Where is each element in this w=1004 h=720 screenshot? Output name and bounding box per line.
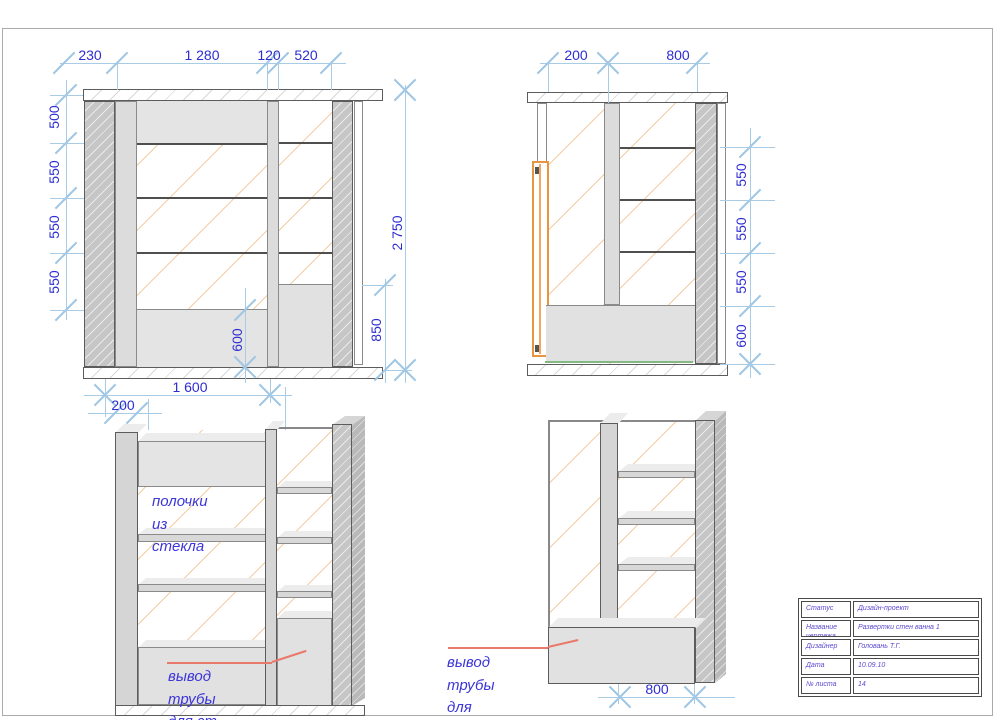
side-shelf — [277, 487, 332, 494]
base-block — [546, 305, 695, 362]
dim-label: 550 — [47, 150, 61, 194]
top-plank — [83, 89, 383, 101]
top-plank — [527, 92, 728, 103]
dim-label: 200 — [108, 398, 138, 412]
dim-label: 800 — [663, 48, 693, 62]
dim-label: 2 750 — [390, 203, 404, 263]
base-block — [548, 627, 695, 684]
shelf-line — [620, 199, 695, 201]
note-glass-shelves: полочки из стекла — [152, 491, 208, 559]
ext-line — [694, 684, 695, 704]
leader-line — [448, 647, 548, 649]
ext-line — [105, 379, 106, 417]
right-strip — [717, 103, 726, 364]
right-wall-hatch — [332, 424, 352, 706]
shelf — [618, 518, 695, 525]
dim-label: 1 600 — [168, 380, 212, 394]
dim-label: 1 280 — [180, 48, 224, 62]
panel-left-edge — [548, 420, 550, 627]
shelf-line — [279, 252, 332, 254]
ext-line — [618, 684, 619, 704]
dim-label: 800 — [642, 682, 672, 696]
dim-line — [405, 85, 406, 383]
title-block-label: Статус — [801, 601, 851, 618]
ext-line — [720, 364, 775, 365]
dim-label: 850 — [369, 308, 383, 352]
ext-line — [270, 379, 271, 403]
top-band — [138, 441, 267, 487]
right-block — [279, 284, 332, 367]
title-block-value: Развертки стен ванна 1 — [853, 620, 979, 637]
dim-label: 120 — [254, 48, 284, 62]
middle-column — [267, 101, 279, 367]
right-wall-hatch — [695, 420, 715, 683]
ext-line — [285, 387, 286, 431]
ext-line — [720, 147, 775, 148]
title-block-value: 10.09.10 — [853, 658, 979, 675]
title-block-label: Название чертежа — [801, 620, 851, 637]
dim-line — [66, 80, 67, 320]
ext-line — [50, 310, 84, 311]
left-wall-hatch — [84, 101, 115, 367]
title-block: Статус Дизайн-проект Название чертежа Ра… — [798, 598, 982, 697]
ext-line — [362, 285, 393, 286]
door-leaf-line — [539, 164, 541, 354]
shelf-line — [279, 142, 332, 144]
ext-line — [117, 63, 118, 90]
right-wall-hatch — [695, 103, 717, 364]
left-panel — [115, 101, 137, 367]
dim-label: 200 — [561, 48, 591, 62]
ext-line — [608, 63, 609, 103]
shelf-line — [137, 197, 267, 199]
bottom-plank — [115, 705, 365, 716]
side-shelf — [277, 537, 332, 544]
title-block-value: 14 — [853, 677, 979, 694]
top-band — [137, 101, 267, 145]
right-wall-hatch — [332, 101, 353, 367]
glass-area-right — [279, 101, 332, 284]
wall-side-face — [352, 416, 365, 706]
floor-line — [545, 361, 693, 363]
shelf — [618, 564, 695, 571]
door-hinge — [535, 345, 539, 352]
middle-column — [604, 103, 620, 305]
ext-line — [331, 63, 332, 90]
dim-label: 520 — [291, 48, 321, 62]
middle-column — [600, 423, 618, 628]
shelf — [618, 471, 695, 478]
dim-label: 550 — [734, 260, 748, 304]
glass-shelf — [138, 584, 267, 592]
title-block-label: № листа — [801, 677, 851, 694]
ext-line — [267, 63, 268, 90]
dim-label: 550 — [734, 153, 748, 197]
dim-label: 600 — [734, 314, 748, 358]
panel-top-edge — [548, 420, 695, 422]
shelf-line — [279, 197, 332, 199]
wall-side-face — [715, 411, 726, 683]
dim-label: 600 — [230, 318, 244, 362]
dim-line — [88, 413, 162, 414]
right-strip — [354, 101, 363, 365]
dim-label: 500 — [47, 95, 61, 139]
title-block-value: Дизайн-проект — [853, 601, 979, 618]
dim-label: 550 — [734, 207, 748, 251]
title-block-label: Дата — [801, 658, 851, 675]
ext-line — [720, 200, 775, 201]
dim-line — [84, 395, 292, 396]
ext-line — [278, 63, 279, 90]
dim-label: 230 — [75, 48, 105, 62]
ext-line — [50, 198, 84, 199]
left-column — [537, 103, 547, 162]
left-column — [115, 432, 138, 706]
ext-line — [720, 306, 775, 307]
note-sink-pipe: вывод трубы для мойки — [447, 652, 494, 720]
dim-label: 550 — [47, 260, 61, 304]
title-block-label: Дизайнер — [801, 639, 851, 656]
dim-line — [60, 63, 346, 64]
panel-top-edge — [275, 427, 332, 429]
shelf-line — [620, 147, 695, 149]
drawing-sheet: 230 1 280 120 520 500 550 550 550 600 85… — [0, 0, 1004, 720]
side-shelf — [277, 591, 332, 598]
ext-line — [548, 63, 549, 92]
ext-line — [720, 253, 775, 254]
bottom-band — [137, 309, 267, 367]
dim-line — [540, 63, 710, 64]
note-washer-pipe: вывод трубы для ст. машины — [168, 666, 227, 720]
ext-line — [697, 63, 698, 92]
side-block — [277, 618, 332, 706]
dim-label: 550 — [47, 205, 61, 249]
leader-line — [167, 662, 272, 664]
shelf-line — [620, 251, 695, 253]
ext-line — [50, 253, 84, 254]
title-block-value: Головань Т.Г. — [853, 639, 979, 656]
middle-divider — [265, 429, 277, 706]
door-hinge — [535, 167, 539, 174]
bottom-plank — [527, 364, 728, 376]
ext-line — [50, 143, 84, 144]
shelf-line — [137, 252, 267, 254]
